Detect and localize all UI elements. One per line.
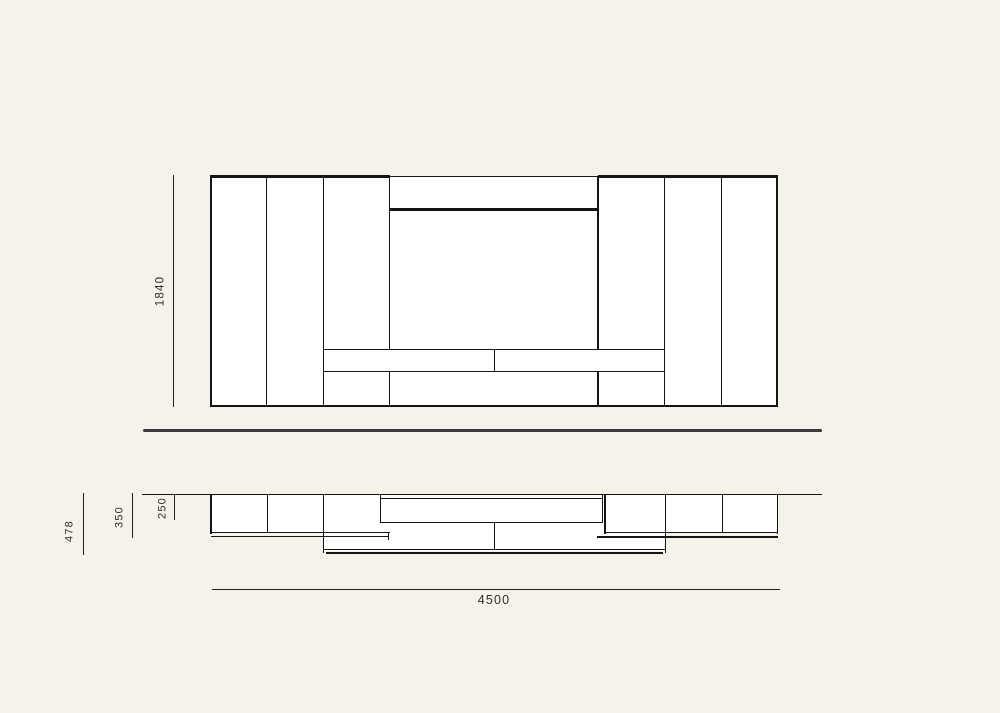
elevation-mid-column-left-upper	[389, 176, 391, 349]
elevation-divider-right-2	[721, 176, 722, 406]
elevation-top-edge-center	[389, 176, 598, 177]
elevation-divider-left-1	[266, 176, 267, 406]
width-dimension-label: 4500	[478, 594, 511, 607]
plan-left-cabinet-left-edge	[210, 494, 212, 534]
depth-350-dimension-line	[132, 493, 133, 538]
plan-bridge-body	[380, 495, 603, 523]
depth-478-dimension-label: 478	[65, 520, 76, 542]
elevation-shelf-band-divider	[494, 349, 495, 372]
plan-left-cabinet-shadow	[211, 536, 389, 538]
plan-bridge-front	[380, 522, 603, 523]
plan-left-cabinet-divider-2	[323, 494, 324, 553]
plan-right-cabinet-divider-2	[722, 494, 723, 533]
plan-wall-line	[142, 494, 822, 495]
plan-left-cabinet-front	[210, 532, 390, 533]
plan-right-cabinet-divider-1	[665, 494, 666, 553]
depth-350-dimension-label: 350	[114, 506, 125, 528]
elevation-bridge-underline	[390, 208, 598, 211]
plan-bench-divider	[494, 523, 495, 550]
plan-left-cabinets-body	[210, 495, 389, 533]
plan-right-cabinet-shadow	[597, 536, 778, 538]
elevation-mid-column-right-upper	[597, 176, 599, 349]
plan-right-cabinet-left-edge	[604, 494, 606, 534]
depth-478-dimension-line	[83, 493, 84, 555]
ground-separator-line	[143, 429, 822, 432]
elevation-mid-column-right-lower	[597, 372, 599, 406]
width-dimension-line	[212, 589, 780, 590]
depth-250-dimension-line	[174, 494, 175, 520]
depth-250-dimension-label: 250	[158, 497, 169, 519]
plan-bench-front	[323, 549, 665, 550]
elevation-mid-column-left-lower	[389, 372, 391, 406]
elevation-right-edge	[776, 175, 778, 408]
technical-drawing-canvas: 1840 478	[0, 0, 1000, 713]
elevation-left-edge	[210, 175, 212, 408]
plan-right-cabinet-right-edge	[777, 494, 779, 534]
plan-right-cabinet-front	[604, 532, 778, 533]
elevation-top-edge-right	[598, 175, 778, 178]
plan-bridge-top	[380, 498, 603, 499]
plan-left-cabinet-divider-1	[267, 494, 268, 533]
elevation-bottom-edge	[210, 405, 778, 407]
elevation-top-edge-left	[210, 175, 390, 178]
plan-bench-shadow	[326, 552, 663, 554]
plan-right-cabinets-body	[598, 495, 778, 533]
height-dimension-label: 1840	[155, 276, 167, 306]
height-dimension-line	[173, 175, 174, 407]
